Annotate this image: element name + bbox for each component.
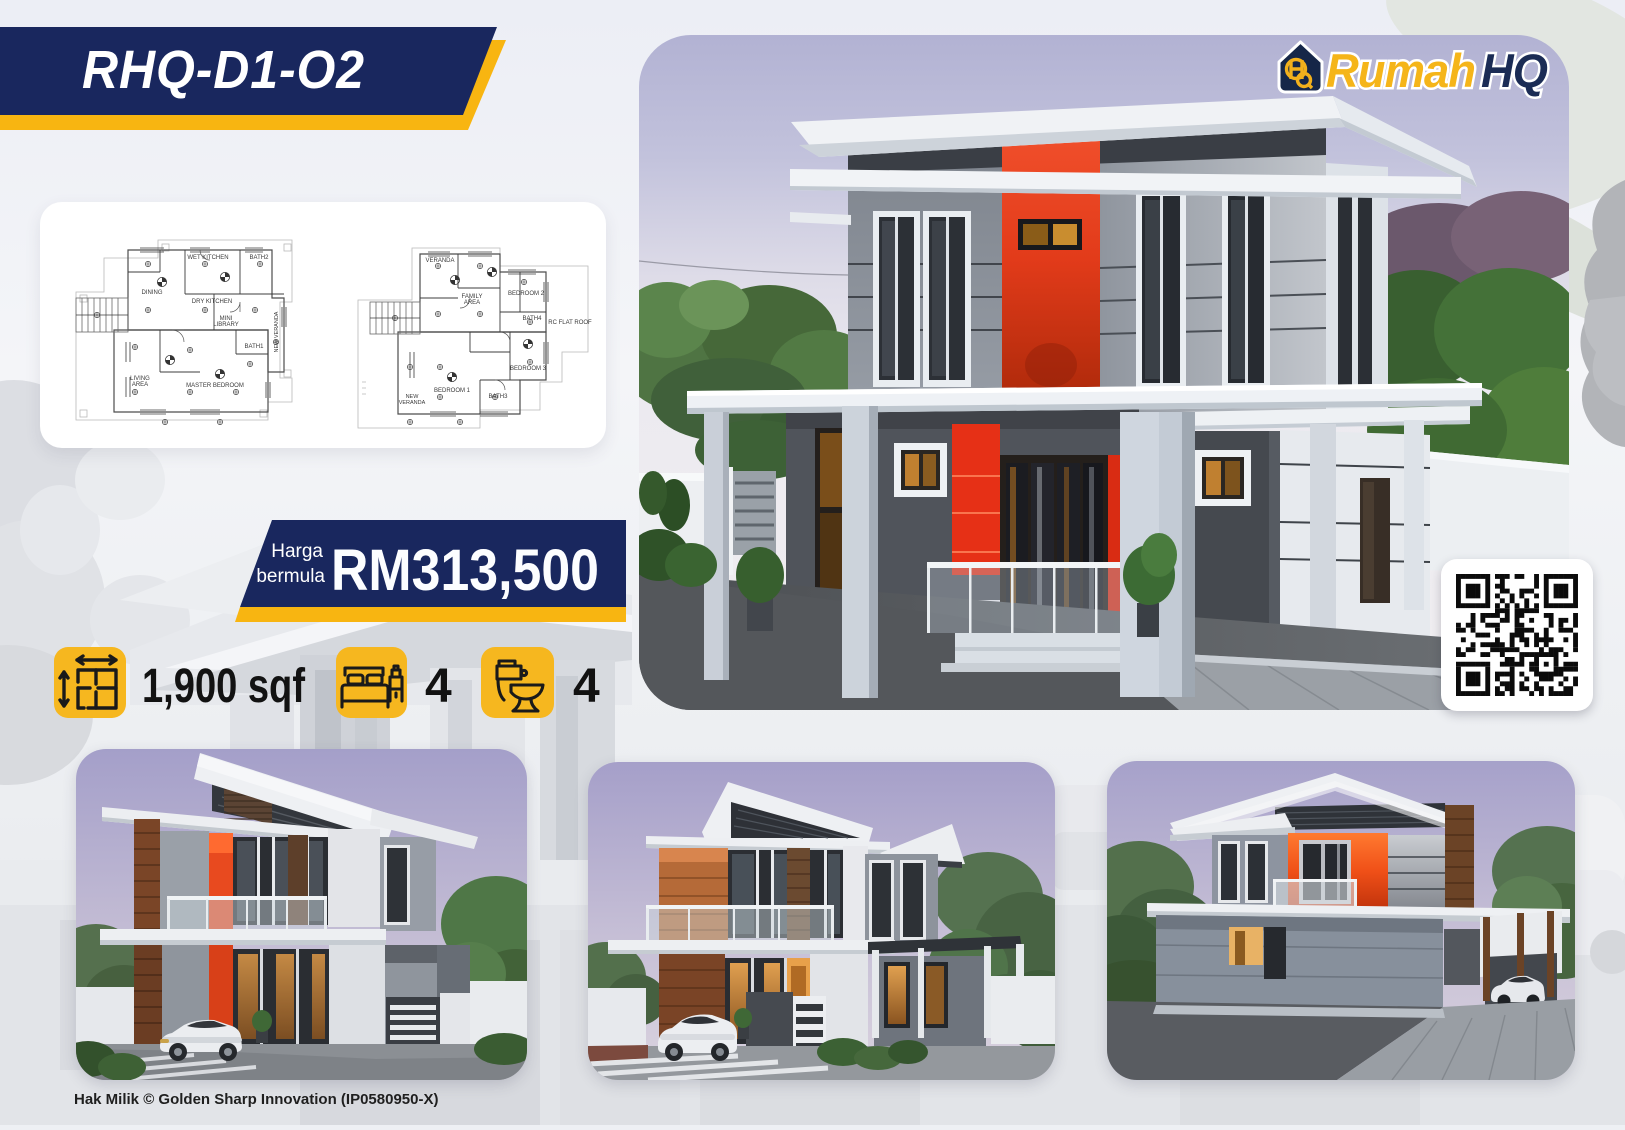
svg-text:BATH1: BATH1 [245, 344, 265, 350]
svg-text:BATH3: BATH3 [489, 394, 509, 400]
svg-text:WET KITCHEN: WET KITCHEN [187, 255, 228, 261]
svg-text:VERANDA: VERANDA [399, 400, 426, 406]
svg-text:LIBRARY: LIBRARY [213, 322, 239, 328]
svg-text:4: 4 [425, 660, 452, 713]
svg-text:1,900 sqf: 1,900 sqf [142, 660, 306, 713]
svg-text:DINING: DINING [142, 290, 163, 296]
svg-text:BEDROOM 1: BEDROOM 1 [434, 388, 471, 394]
svg-text:NEW VERANDA: NEW VERANDA [274, 311, 280, 352]
svg-text:RHQ-D1-O2: RHQ-D1-O2 [82, 40, 365, 100]
svg-text:BEDROOM 3: BEDROOM 3 [510, 366, 547, 372]
svg-text:BEDROOM 2: BEDROOM 2 [508, 291, 545, 297]
svg-text:4: 4 [573, 660, 600, 713]
svg-text:VERANDA: VERANDA [425, 258, 454, 264]
svg-text:BATH2: BATH2 [250, 255, 270, 261]
svg-text:HQ: HQ [1481, 44, 1547, 97]
svg-text:BATH4: BATH4 [523, 316, 543, 322]
svg-text:MASTER BEDROOM: MASTER BEDROOM [186, 383, 244, 389]
svg-text:Harga: Harga [271, 541, 323, 562]
svg-text:bermula: bermula [256, 566, 325, 587]
svg-text:AREA: AREA [464, 300, 480, 306]
svg-text:AREA: AREA [132, 382, 148, 388]
svg-text:RM313,500: RM313,500 [331, 538, 599, 603]
svg-text:DRY KITCHEN: DRY KITCHEN [192, 299, 232, 305]
svg-text:Rumah: Rumah [1326, 44, 1475, 97]
svg-text:RC FLAT ROOF: RC FLAT ROOF [548, 320, 592, 326]
